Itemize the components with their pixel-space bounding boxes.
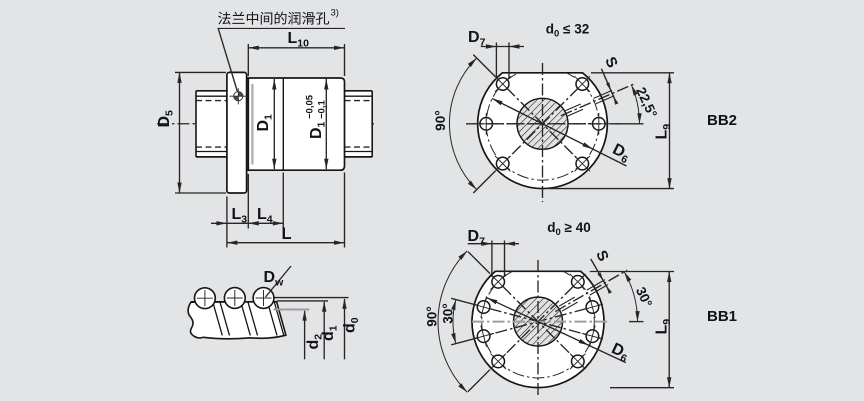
svg-text:30°: 30° [441,303,456,323]
svg-text:BB2: BB2 [707,112,737,129]
svg-text:90°: 90° [433,110,448,130]
svg-text:−0,05: −0,05 [305,94,316,119]
svg-text:−0,1: −0,1 [317,100,328,119]
svg-text:90°: 90° [425,306,440,326]
svg-text:3): 3) [331,8,339,19]
svg-text:BB1: BB1 [707,308,737,325]
svg-text:L: L [281,225,291,243]
